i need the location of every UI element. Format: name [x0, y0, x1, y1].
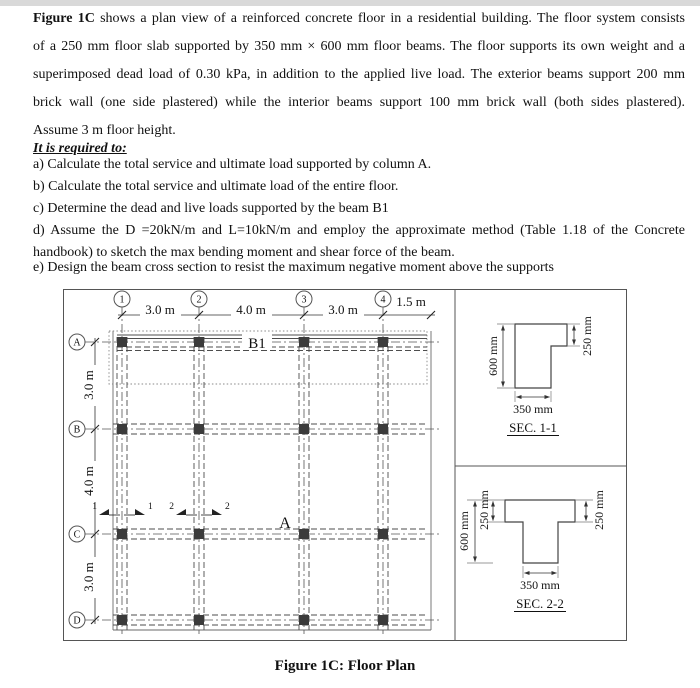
- sec1-dimension-lines: [503, 326, 574, 398]
- grid-bubble-4: 4: [381, 295, 386, 306]
- intro-line-5: Assume 3 m floor height.: [33, 122, 685, 140]
- intro-line-2: of a 250 mm floor slab supported by 350 …: [33, 38, 685, 56]
- figure-ref-bold: Figure 1C: [33, 11, 95, 26]
- section-1-1: 600 mm 250 mm 350 mm SEC. 1-1: [486, 316, 594, 436]
- floor-plan: 3.0 m 4.0 m 3.0 m 1.5 m 3.0 m 4.0 m 3.0 …: [69, 291, 441, 634]
- intro-line-4: brick wall (one side plastered) while th…: [33, 94, 685, 112]
- requirement-a: a) Calculate the total service and ultim…: [33, 156, 685, 174]
- dim-top-1: 3.0 m: [145, 302, 175, 317]
- grid-bubble-a: A: [73, 338, 81, 349]
- sec1-title: SEC. 1-1: [509, 420, 557, 435]
- requirement-b: b) Calculate the total service and ultim…: [33, 178, 685, 196]
- sec1-depth-label: 600 mm: [486, 336, 500, 376]
- figure-1c: 3.0 m 4.0 m 3.0 m 1.5 m 3.0 m 4.0 m 3.0 …: [63, 289, 627, 646]
- sec2-flange-right-label: 250 mm: [592, 490, 606, 530]
- sec2-outline: [505, 500, 575, 563]
- dim-left-3: 3.0 m: [81, 562, 96, 592]
- dim-left-1: 3.0 m: [81, 370, 96, 400]
- sec2-depth-label: 600 mm: [457, 511, 471, 551]
- requirement-d-line-1: d) Assume the D =20kN/m and L=10kN/m and…: [33, 222, 685, 240]
- section-mark-2-right: 2: [225, 502, 230, 512]
- document-page: Figure 1C shows a plan view of a reinfor…: [0, 0, 700, 688]
- grid-bubble-1: 1: [120, 295, 125, 306]
- section-mark-2-left: 2: [169, 502, 174, 512]
- sec2-width-label: 350 mm: [520, 578, 560, 592]
- section-mark-1-right: 1: [148, 502, 153, 512]
- dim-top-2: 4.0 m: [236, 302, 266, 317]
- required-heading-text: It is required to:: [33, 141, 127, 156]
- left-dimension-line: 3.0 m 4.0 m 3.0 m: [81, 338, 99, 624]
- dim-left-2: 4.0 m: [81, 466, 96, 496]
- sec2-title: SEC. 2-2: [516, 596, 564, 611]
- grid-bubble-b: B: [74, 425, 81, 436]
- dim-top-4: 1.5 m: [396, 294, 426, 309]
- grid-bubble-c: C: [74, 530, 81, 541]
- grid-bubble-d: D: [73, 616, 80, 627]
- column-a-label: A: [279, 515, 291, 532]
- sec1-width-label: 350 mm: [513, 402, 553, 416]
- requirement-c: c) Determine the dead and live loads sup…: [33, 200, 685, 218]
- dim-top-3: 3.0 m: [328, 302, 358, 317]
- beam-lines: [113, 335, 427, 630]
- intro-line-1: Figure 1C shows a plan view of a reinfor…: [33, 10, 685, 28]
- figure-caption: Figure 1C: Floor Plan: [63, 658, 627, 675]
- grid-bubble-3: 3: [302, 295, 307, 306]
- sec2-dimension-lines: [475, 502, 586, 574]
- intro-line-1-rest: shows a plan view of a reinforced concre…: [95, 11, 685, 26]
- section-mark-1-left: 1: [92, 502, 97, 512]
- page-edge-band: [0, 0, 700, 6]
- sec1-flange-label: 250 mm: [580, 316, 594, 356]
- floor-plan-figure-svg: 3.0 m 4.0 m 3.0 m 1.5 m 3.0 m 4.0 m 3.0 …: [63, 289, 627, 641]
- columns: [117, 337, 388, 625]
- sec1-outline: [515, 324, 567, 388]
- sec2-flange-left-label: 250 mm: [477, 490, 491, 530]
- grid-bubble-2: 2: [197, 295, 202, 306]
- intro-line-3: superimposed dead load of 0.30 kPa, in a…: [33, 66, 685, 84]
- requirement-e: e) Design the beam cross section to resi…: [33, 259, 685, 277]
- beam-b1-label: B1: [248, 336, 266, 352]
- section-2-2: 600 mm 250 mm 250 mm 350 mm SEC. 2-2: [457, 490, 606, 612]
